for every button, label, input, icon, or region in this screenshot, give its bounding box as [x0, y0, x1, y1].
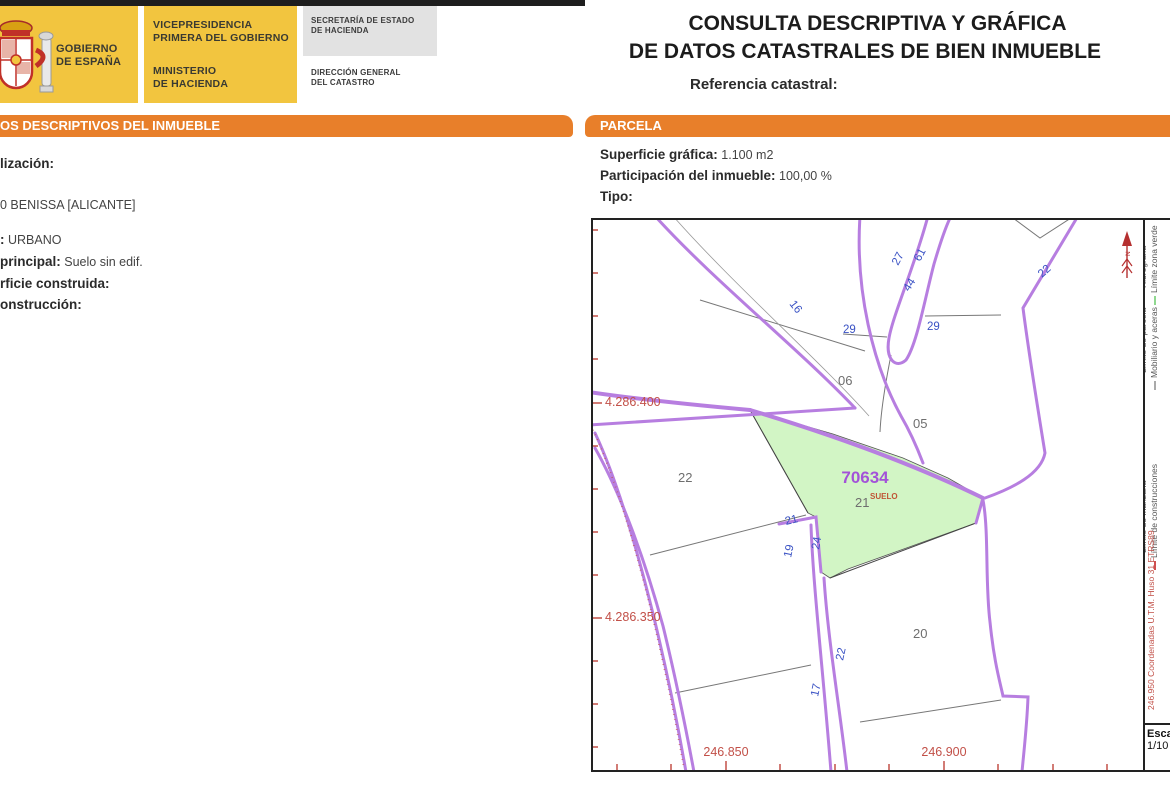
highlight-parcel-id: 70634: [841, 468, 889, 487]
field-participacion-value: 100,00 %: [779, 169, 832, 183]
spain-coat-of-arms-icon: [0, 16, 62, 104]
legend-entry-limite-parcela: Límite de parcela: [1143, 308, 1148, 385]
street-number-21: 21: [784, 513, 799, 528]
legend-entry-mobiliario: Mobiliario y aceras: [1149, 307, 1159, 390]
parcel-number-06: 06: [838, 373, 852, 388]
mobiliario-line-sample: [1154, 381, 1156, 390]
street-number-16: 16: [787, 298, 804, 315]
field-clase-value: URBANO: [8, 233, 61, 247]
coordinate-label-y2: 4.286.350: [605, 610, 661, 624]
section-header-datos-descriptivos: OS DESCRIPTIVOS DEL INMUEBLE: [0, 115, 573, 137]
limite-manzana-line-sample: [1143, 556, 1145, 565]
cadastral-document-page: GOBIERNO DE ESPAÑA VICEPRESIDENCIA PRIME…: [0, 0, 1170, 785]
field-uso-principal-value: Suelo sin edif.: [64, 255, 143, 269]
coordinate-label-x2: 246.900: [921, 745, 966, 759]
limite-parcela-line-sample: [1143, 376, 1145, 385]
coordinate-label-x1: 246.850: [703, 745, 748, 759]
logo-gobierno-block: GOBIERNO DE ESPAÑA: [0, 6, 138, 103]
utm-coordinates-note: 246.950 Coordenadas U.T.M. Huso 31 ETRS8…: [1146, 530, 1156, 710]
section-header-parcela: PARCELA: [585, 115, 1170, 137]
left-section-title: OS DESCRIPTIVOS DEL INMUEBLE: [0, 118, 220, 133]
field-superficie-grafica-value: 1.100 m2: [721, 148, 773, 162]
parcel-number-22: 22: [678, 470, 692, 485]
street-number-22a: 22: [1036, 263, 1054, 280]
highlight-parcel-suelo-label: SUELO: [870, 492, 898, 501]
left-coordinate-ticks: [593, 230, 602, 747]
direccion-line1: DIRECCIÓN GENERAL: [311, 68, 401, 78]
ministerio-line1: MINISTERIO: [153, 65, 228, 78]
scale-box: Esca 1/10: [1145, 723, 1170, 770]
referencia-catastral-label: Referencia catastral:: [690, 76, 838, 93]
legend-entry-zona-verde: Límite zona verde: [1149, 225, 1159, 305]
construction-limit-dotted-line: [593, 430, 684, 769]
direccion-line2: DEL CATASTRO: [311, 78, 401, 88]
gobierno-line2: DE ESPAÑA: [56, 56, 121, 69]
vicepresidencia-line1: VICEPRESIDENCIA: [153, 19, 289, 32]
field-superficie-construida-label: rficie construida:: [0, 276, 110, 291]
street-number-22b: 22: [834, 647, 848, 662]
field-participacion-label: Participación del inmueble:: [600, 168, 776, 183]
cadastral-map: 4.286.400 4.286.350 246.850 246.900 06 0…: [591, 218, 1145, 772]
field-localizacion-value: 0 BENISSA [ALICANTE]: [0, 198, 135, 212]
direccion-catastro-block: DIRECCIÓN GENERAL DEL CATASTRO: [303, 56, 437, 103]
document-title-line1: CONSULTA DESCRIPTIVA Y GRÁFICA: [585, 12, 1170, 36]
field-uso-principal-label: principal:: [0, 254, 61, 269]
street-number-29a: 29: [843, 324, 856, 336]
logo-ministerio-block: VICEPRESIDENCIA PRIMERA DEL GOBIERNO MIN…: [144, 6, 297, 103]
map-legend-strip: Hidrografía Límite zona verde Límite de …: [1143, 218, 1170, 772]
street-number-19: 19: [782, 544, 796, 559]
field-tipo-label: Tipo:: [600, 189, 633, 204]
scale-label: Esca: [1147, 728, 1170, 740]
vicepresidencia-line2: PRIMERA DEL GOBIERNO: [153, 32, 289, 45]
street-number-29b: 29: [927, 321, 940, 333]
secretaria-line1: SECRETARÍA DE ESTADO: [311, 16, 414, 26]
street-number-17: 17: [809, 683, 823, 698]
coordinate-label-y1: 4.286.400: [605, 395, 661, 409]
street-number-27: 27: [890, 250, 907, 267]
ministerio-line2: DE HACIENDA: [153, 78, 228, 91]
parcel-number-21: 21: [855, 495, 869, 510]
gobierno-line1: GOBIERNO: [56, 43, 121, 56]
cadastral-map-drawing: 4.286.400 4.286.350 246.850 246.900 06 0…: [593, 220, 1143, 770]
secretaria-block: SECRETARÍA DE ESTADO DE HACIENDA: [303, 6, 437, 56]
bottom-coordinate-ticks: [617, 761, 1107, 770]
field-ano-construccion-label: onstrucción:: [0, 297, 82, 312]
hidrografia-line-sample: [1143, 291, 1145, 300]
zona-verde-line-sample: [1154, 296, 1156, 305]
field-localizacion-label: lización:: [0, 156, 54, 171]
field-clase-label: :: [0, 232, 5, 247]
scale-value: 1/10: [1147, 740, 1170, 752]
parcel-number-05: 05: [913, 416, 927, 431]
parcela-section-title: PARCELA: [600, 118, 662, 133]
parcel-number-20: 20: [913, 626, 927, 641]
document-title-line2: DE DATOS CATASTRALES DE BIEN INMUEBLE: [560, 40, 1170, 64]
north-arrow-label: N: [1125, 251, 1132, 256]
field-superficie-grafica-label: Superficie gráfica:: [600, 147, 718, 162]
legend-entry-hidrografia: Hidrografía: [1143, 246, 1148, 300]
secretaria-line2: DE HACIENDA: [311, 26, 414, 36]
